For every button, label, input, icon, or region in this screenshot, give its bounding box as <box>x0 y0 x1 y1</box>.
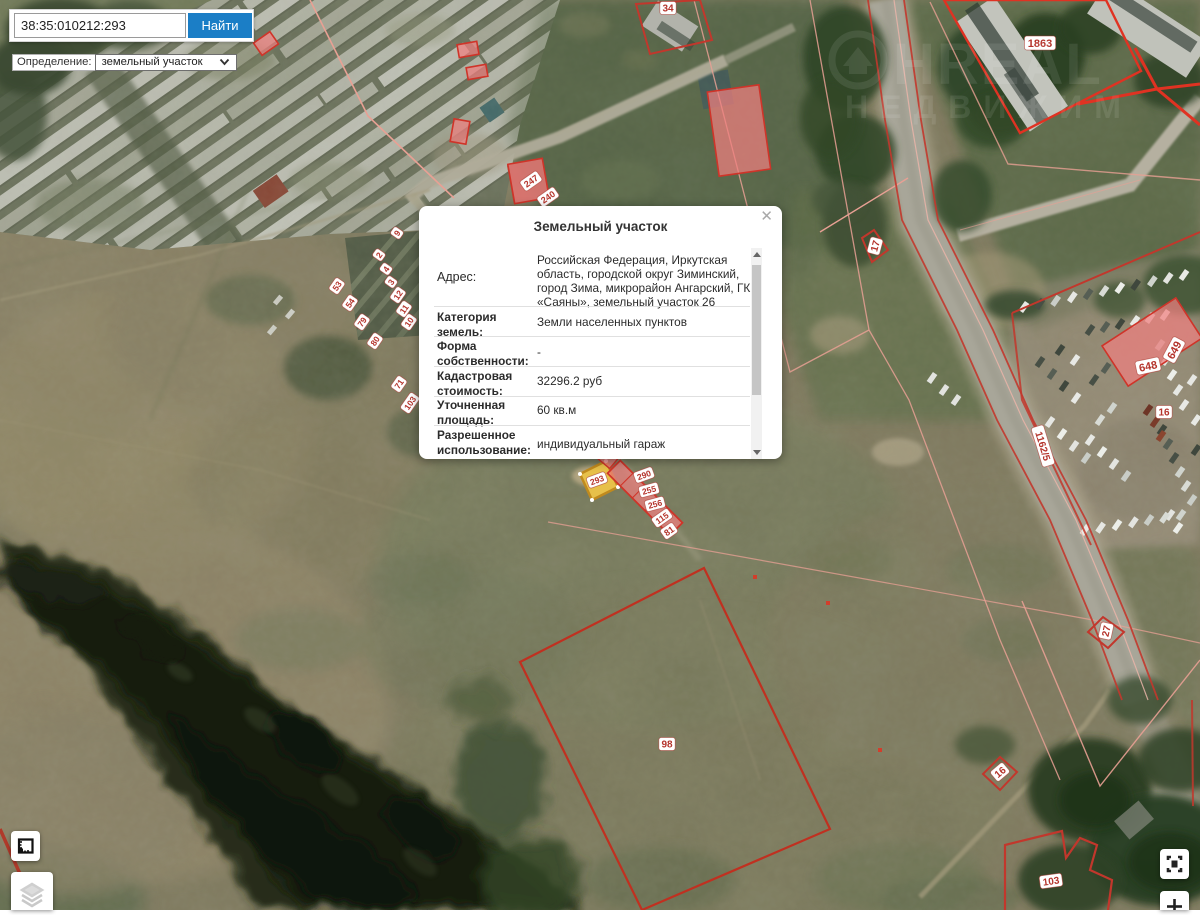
svg-text:34: 34 <box>662 4 674 15</box>
svg-text:103: 103 <box>1042 875 1060 888</box>
svg-text:16: 16 <box>1158 408 1170 419</box>
svg-text:НREAL: НREAL <box>893 32 1103 97</box>
svg-text:98: 98 <box>661 740 673 751</box>
svg-text:НЕДВИЖИМ: НЕДВИЖИМ <box>845 89 1133 125</box>
